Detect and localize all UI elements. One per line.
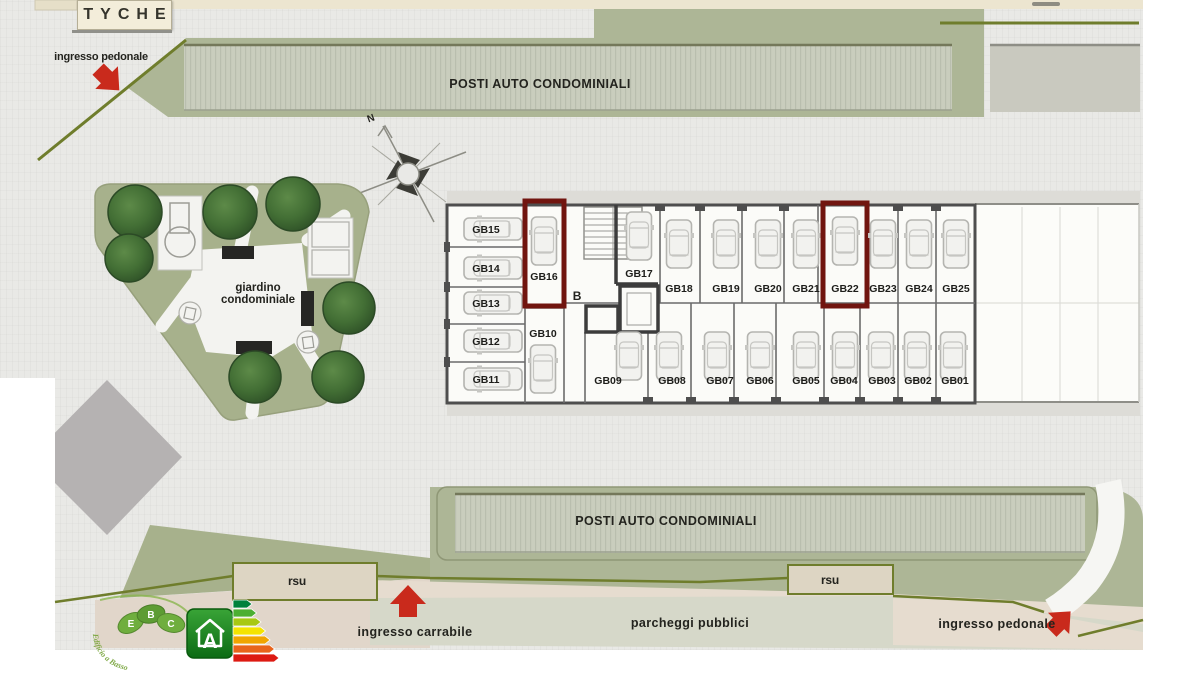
condo-parking-top-label: POSTI AUTO CONDOMINIALI — [449, 77, 630, 91]
title-underline — [72, 30, 172, 33]
energy-class-letter: A — [202, 630, 217, 653]
pedestrian-entrance-top-arrow-icon — [87, 58, 131, 102]
condo-parking-band-top — [128, 9, 984, 117]
small-logo-mark — [1032, 2, 1060, 6]
garage-label-GB13: GB13 — [472, 298, 500, 310]
car-icon-GB16 — [529, 217, 559, 265]
garage-label-GB01: GB01 — [941, 375, 969, 387]
garage-label-GB04: GB04 — [830, 375, 858, 387]
tree-icon — [108, 185, 162, 239]
waste-area-right — [788, 565, 893, 594]
energy-scale-arrow — [233, 636, 270, 644]
plan-graphics: GB15GB14GB13GB12GB11GB16GB10GB17GB18GB19… — [0, 0, 1200, 680]
driveway-bottom — [447, 403, 1140, 416]
garage-label-GB15: GB15 — [472, 224, 500, 236]
car-icon-GB07 — [702, 332, 732, 380]
energy-scale-arrow — [233, 618, 261, 626]
garage-label-GB16: GB16 — [530, 271, 558, 283]
car-icon-GB25 — [941, 220, 971, 268]
car-icon-GB06 — [745, 332, 775, 380]
garage-label-GB18: GB18 — [665, 283, 693, 295]
condo-parking-bottom-label: POSTI AUTO CONDOMINIALI — [575, 514, 756, 528]
ebc-letter-e: E — [128, 619, 135, 630]
car-icon-GB01 — [938, 332, 968, 380]
public-parking-label: parcheggi pubblici — [631, 616, 749, 630]
garage-label-GB06: GB06 — [746, 375, 774, 387]
garage-label-GB10: GB10 — [529, 328, 557, 340]
car-icon-GB24 — [904, 220, 934, 268]
stairwell-label: B — [573, 289, 581, 303]
garden-label-line1: giardino — [221, 282, 295, 294]
garage-label-GB09: GB09 — [594, 375, 622, 387]
car-icon-GB08 — [654, 332, 684, 380]
waste-area-left-label: rsu — [288, 574, 306, 588]
tree-icon — [203, 185, 257, 239]
energy-scale-arrow — [233, 645, 275, 653]
car-icon-GB20 — [753, 220, 783, 268]
energy-scale-arrow — [233, 609, 257, 617]
top-cream-strip — [35, 0, 1143, 10]
garage-label-GB12: GB12 — [472, 336, 500, 348]
garage-label-GB17: GB17 — [625, 268, 653, 280]
car-icon-GB05 — [791, 332, 821, 380]
garage-label-GB02: GB02 — [904, 375, 932, 387]
car-icon-GB23 — [868, 220, 898, 268]
car-icon-GB10 — [528, 345, 558, 393]
ebc-letter-b: B — [147, 610, 154, 621]
tree-icon — [266, 177, 320, 231]
car-icon-GB17 — [624, 212, 654, 260]
ebc-letter-c: C — [167, 619, 174, 630]
garage-label-GB19: GB19 — [712, 283, 740, 295]
garage-label-GB07: GB07 — [706, 375, 734, 387]
project-title-box: TYCHE — [77, 0, 172, 30]
garage-label-GB03: GB03 — [868, 375, 896, 387]
tree-icon — [323, 282, 375, 334]
garage-label-GB05: GB05 — [792, 375, 820, 387]
site-plan: GB15GB14GB13GB12GB11GB16GB10GB17GB18GB19… — [0, 0, 1200, 680]
garage-label-GB21: GB21 — [792, 283, 820, 295]
garage-label-GB25: GB25 — [942, 283, 970, 295]
waste-area-right-label: rsu — [821, 573, 839, 587]
tree-icon — [229, 351, 281, 403]
car-icon-GB04 — [830, 332, 860, 380]
project-title: TYCHE — [76, 6, 172, 24]
garage-label-GB11: GB11 — [473, 374, 500, 386]
pedestrian-entrance-top-label: ingresso pedonale — [54, 51, 148, 63]
energy-scale-arrow — [233, 654, 279, 662]
car-icon-GB18 — [664, 220, 694, 268]
garage-label-GB24: GB24 — [905, 283, 933, 295]
garage-label-GB23: GB23 — [869, 283, 897, 295]
energy-scale-arrow — [233, 627, 266, 635]
garage-label-GB14: GB14 — [472, 263, 500, 275]
garage-label-GB22: GB22 — [831, 283, 859, 295]
garage-label-GB20: GB20 — [754, 283, 782, 295]
tree-icon — [312, 351, 364, 403]
garage-label-GB08: GB08 — [658, 375, 686, 387]
vehicle-entrance-label: ingresso carrabile — [358, 625, 473, 639]
garden-label: giardino condominiale — [221, 282, 295, 306]
car-icon-GB19 — [711, 220, 741, 268]
pedestrian-entrance-bottom-label: ingresso pedonale — [938, 617, 1055, 631]
car-icon-GB22 — [830, 217, 860, 265]
tree-icon — [105, 234, 153, 282]
car-icon-GB09 — [614, 332, 644, 380]
car-icon-GB02 — [902, 332, 932, 380]
car-icon-GB21 — [791, 220, 821, 268]
garage-building: GB15GB14GB13GB12GB11GB16GB10GB17GB18GB19… — [444, 201, 1139, 403]
car-icon-GB03 — [866, 332, 896, 380]
left-margin — [0, 378, 55, 680]
garden-label-line2: condominiale — [221, 294, 295, 306]
